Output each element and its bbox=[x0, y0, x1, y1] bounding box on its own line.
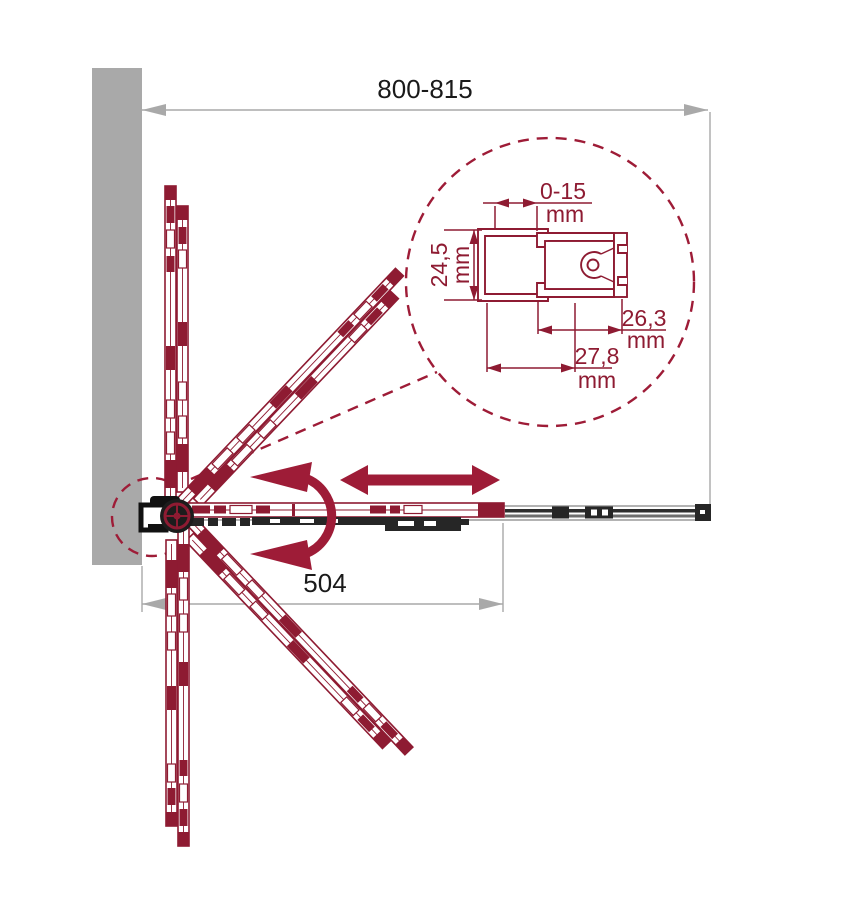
shower-door-plan-drawing: 800-815 504 bbox=[0, 0, 851, 921]
profile-cross-section-detail: 0-15 mm 24,5 mm 26,3 mm bbox=[426, 178, 666, 393]
slide-arrow bbox=[340, 465, 500, 495]
open-panel-width-label: 504 bbox=[303, 568, 346, 598]
profile-depth-unit: mm bbox=[448, 246, 474, 284]
gap-range-unit: mm bbox=[546, 201, 584, 227]
rail-clip bbox=[552, 507, 569, 519]
panel-position-open-horizontal bbox=[184, 503, 504, 531]
door-profile-section bbox=[537, 233, 627, 297]
dimension-gap-range: 0-15 mm bbox=[483, 178, 592, 231]
dimension-wall-profile-width: 27,8 mm bbox=[487, 303, 619, 393]
technical-drawing-page: 800-815 504 bbox=[0, 0, 851, 921]
dimension-profile-depth: 24,5 mm bbox=[426, 230, 482, 300]
door-profile-width-unit: mm bbox=[627, 327, 665, 353]
wall-profile-width-unit: mm bbox=[578, 367, 616, 393]
panel-position-up bbox=[165, 186, 188, 508]
wall bbox=[92, 68, 142, 565]
overall-width-label: 800-815 bbox=[377, 74, 472, 104]
wall-profile-width-value: 27,8 bbox=[575, 343, 620, 369]
panel-position-down bbox=[166, 524, 189, 846]
rail-clip bbox=[585, 507, 613, 519]
